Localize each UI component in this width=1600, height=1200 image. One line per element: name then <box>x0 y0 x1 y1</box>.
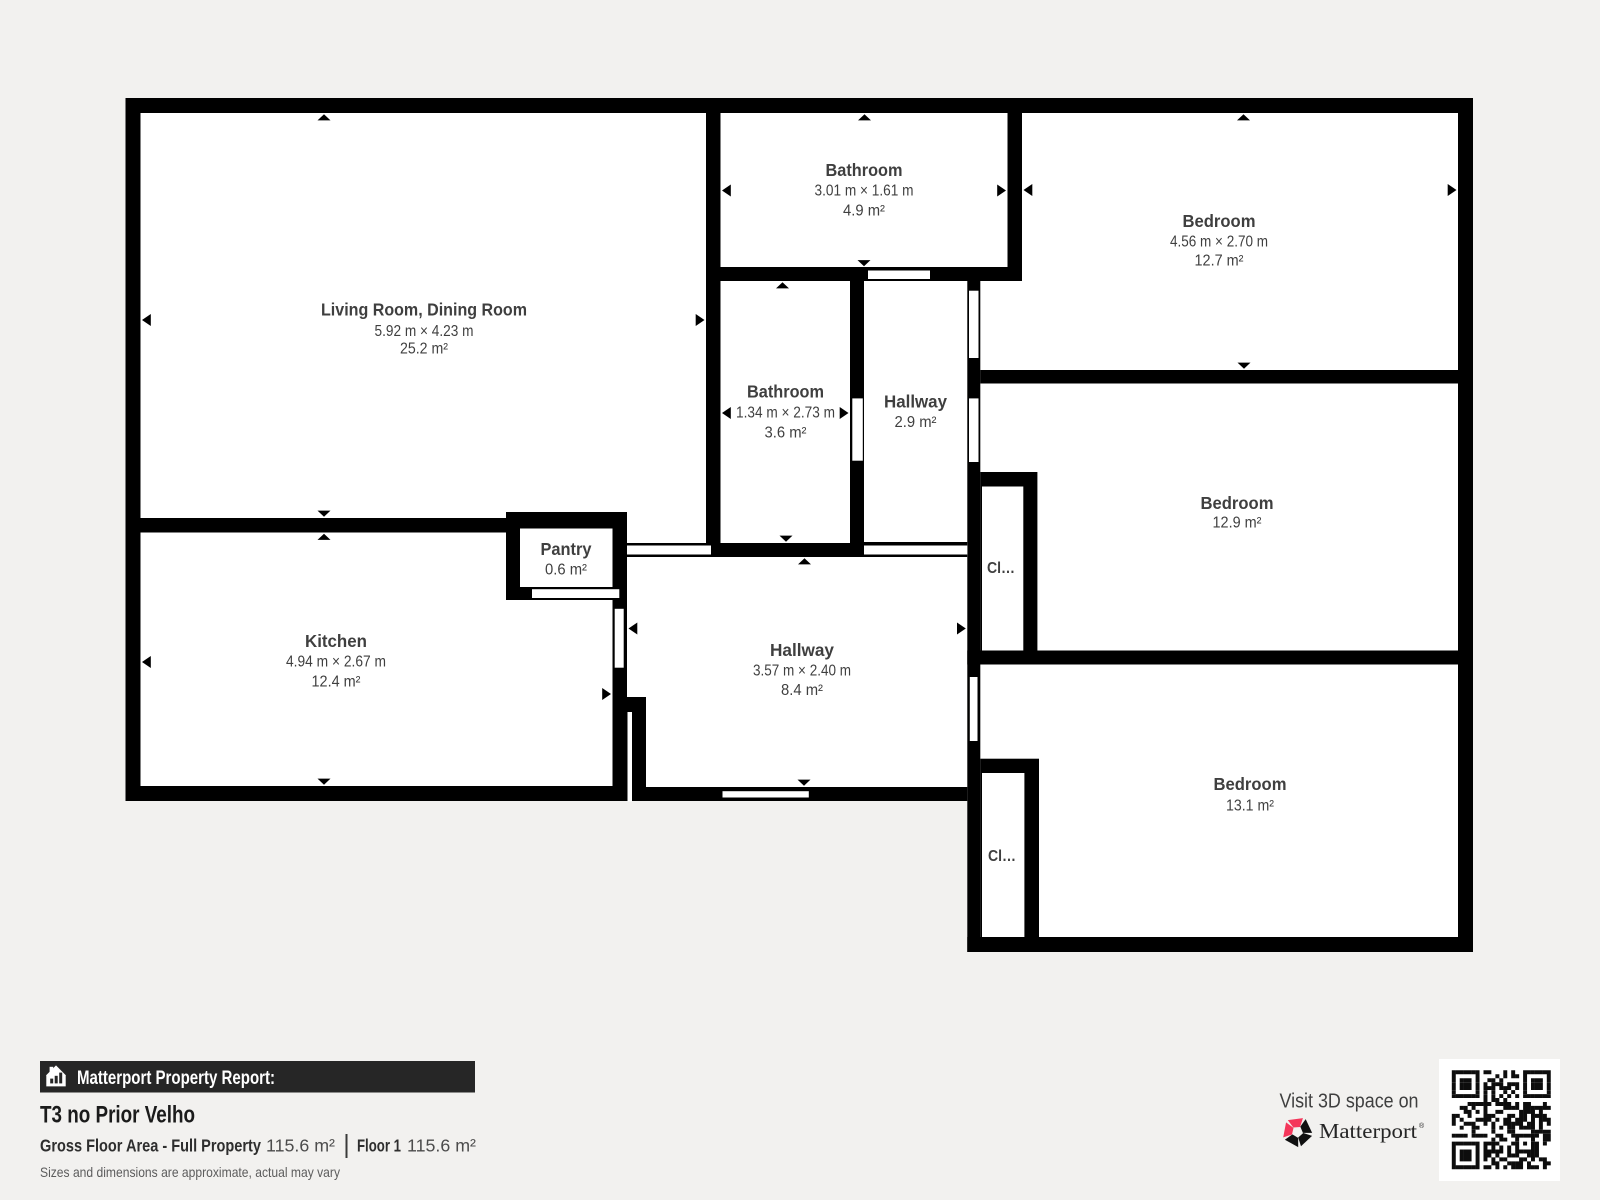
svg-text:3.01 m × 1.61 m: 3.01 m × 1.61 m <box>815 183 914 200</box>
svg-text:Bathroom: Bathroom <box>747 382 824 402</box>
svg-text:Matterport Property Report:: Matterport Property Report: <box>77 1068 275 1089</box>
svg-text:T3 no Prior Velho: T3 no Prior Velho <box>40 1102 195 1129</box>
svg-text:4.56 m × 2.70 m: 4.56 m × 2.70 m <box>1170 234 1268 251</box>
svg-text:Cl…: Cl… <box>988 848 1016 865</box>
svg-text:115.6 m²: 115.6 m² <box>407 1136 476 1156</box>
svg-text:5.92 m × 4.23 m: 5.92 m × 4.23 m <box>375 323 474 340</box>
svg-text:25.2 m²: 25.2 m² <box>400 341 448 358</box>
svg-text:Matterport: Matterport <box>1319 1119 1417 1143</box>
svg-text:3.57 m × 2.40 m: 3.57 m × 2.40 m <box>753 663 851 680</box>
svg-text:115.6 m²: 115.6 m² <box>266 1136 335 1156</box>
svg-text:Hallway: Hallway <box>770 640 834 660</box>
svg-text:13.1 m²: 13.1 m² <box>1226 798 1274 815</box>
svg-text:8.4 m²: 8.4 m² <box>781 682 823 699</box>
svg-text:Living Room, Dining Room: Living Room, Dining Room <box>321 300 527 320</box>
svg-text:Bedroom: Bedroom <box>1201 493 1274 513</box>
svg-text:12.7 m²: 12.7 m² <box>1195 253 1244 270</box>
svg-text:Kitchen: Kitchen <box>305 631 367 651</box>
svg-text:Bedroom: Bedroom <box>1183 211 1256 231</box>
svg-text:Sizes and dimensions are appro: Sizes and dimensions are approximate, ac… <box>40 1164 340 1180</box>
svg-text:Gross Floor Area - Full Proper: Gross Floor Area - Full Property <box>40 1136 261 1156</box>
svg-text:4.94 m × 2.67 m: 4.94 m × 2.67 m <box>286 654 386 671</box>
svg-text:Cl…: Cl… <box>987 560 1015 577</box>
svg-text:12.4 m²: 12.4 m² <box>312 674 361 691</box>
svg-text:0.6 m²: 0.6 m² <box>545 562 587 579</box>
svg-text:Bedroom: Bedroom <box>1214 774 1287 794</box>
svg-text:Floor 1: Floor 1 <box>357 1136 401 1156</box>
svg-text:®: ® <box>1419 1122 1425 1130</box>
svg-text:2.9 m²: 2.9 m² <box>895 414 937 431</box>
svg-text:12.9 m²: 12.9 m² <box>1213 515 1262 532</box>
svg-text:1.34 m × 2.73 m: 1.34 m × 2.73 m <box>736 405 835 422</box>
svg-text:4.9 m²: 4.9 m² <box>843 203 885 220</box>
svg-text:3.6 m²: 3.6 m² <box>765 425 807 442</box>
svg-text:Visit 3D space on: Visit 3D space on <box>1280 1090 1419 1113</box>
svg-text:Pantry: Pantry <box>541 539 592 559</box>
svg-text:Hallway: Hallway <box>884 392 947 412</box>
svg-text:Bathroom: Bathroom <box>826 160 903 180</box>
